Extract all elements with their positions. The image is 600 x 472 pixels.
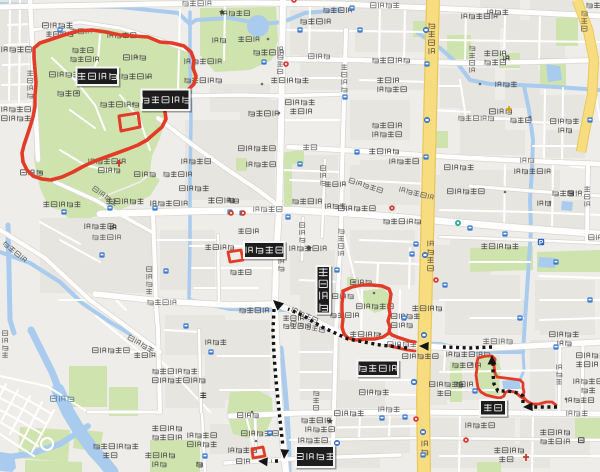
svg-text:P: P xyxy=(539,239,544,246)
